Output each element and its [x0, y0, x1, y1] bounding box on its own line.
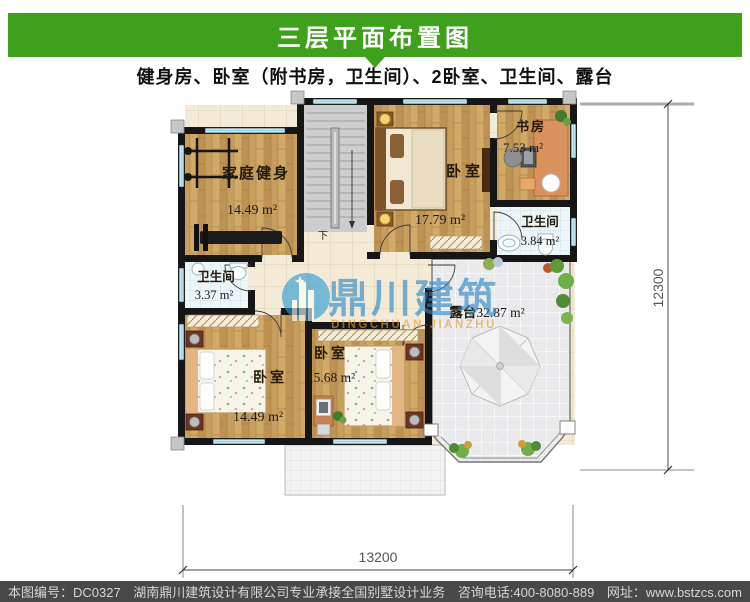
room-label-study: 书房	[516, 119, 546, 134]
floor-plan-drawing: 家庭健身 14.49 m² 卧室 17.79 m² 书房 7.53 m² 卫生间…	[0, 0, 750, 602]
room-label-master-bedroom: 卧室	[446, 162, 484, 180]
closet	[187, 315, 259, 327]
room-area-gym: 14.49 m²	[227, 203, 277, 218]
room-area-master-bedroom: 17.79 m²	[415, 213, 465, 228]
contact-phone: 咨询电话:400-8080-889	[458, 582, 595, 601]
closet	[318, 330, 418, 341]
page-title: 三层平面布置图	[277, 18, 473, 53]
room-area-bathroom-left: 3.37 m²	[195, 288, 234, 302]
sheet-number: 本图编号：DC0327	[8, 582, 121, 601]
lamp	[380, 114, 390, 124]
room-label-bedroom-left: 卧室	[253, 369, 287, 385]
website-url: 网址：www.bstzcs.com	[607, 582, 742, 601]
lamp	[380, 214, 390, 224]
room-area-bathroom-right: 3.84 m²	[521, 234, 560, 248]
footer-bar: 本图编号：DC0327 湖南鼎川建筑设计有限公司专业承接全国别墅设计业务 咨询电…	[0, 581, 750, 602]
room-area-study: 7.53 m²	[503, 140, 543, 155]
parasol	[460, 326, 540, 406]
lower-roof-apron	[285, 445, 445, 495]
stairs-down-label: 下	[318, 231, 328, 242]
watermark-en: DINGCHUAN JIANZHU	[331, 319, 497, 331]
bedroom-rug	[430, 236, 482, 249]
dimension-bottom: 13200	[359, 549, 398, 565]
header-bar: 三层平面布置图	[8, 13, 742, 57]
header-pointer-triangle	[365, 57, 385, 68]
dimension-right: 12300	[650, 268, 666, 307]
room-label-bathroom-left: 卫生间	[197, 269, 235, 284]
room-label-bathroom-right: 卫生间	[521, 214, 559, 229]
room-label-gym: 家庭健身	[222, 164, 290, 182]
stool	[520, 178, 535, 190]
floor-plan-page: 三层平面布置图 健身房、卧室（附书房，卫生间）、2卧室、卫生间、露台	[0, 0, 750, 602]
gym-bench	[200, 231, 282, 244]
watermark-cn: 鼎川建筑	[328, 277, 500, 321]
room-label-bedroom-middle: 卧室	[314, 345, 348, 361]
room-area-bedroom-middle: 15.68 m²	[307, 370, 355, 385]
printer	[317, 424, 330, 435]
room-area-bedroom-left: 14.49 m²	[233, 410, 283, 425]
floor-vase	[542, 174, 560, 192]
company-name: 湖南鼎川建筑设计有限公司专业承接全国别墅设计业务	[133, 582, 445, 601]
